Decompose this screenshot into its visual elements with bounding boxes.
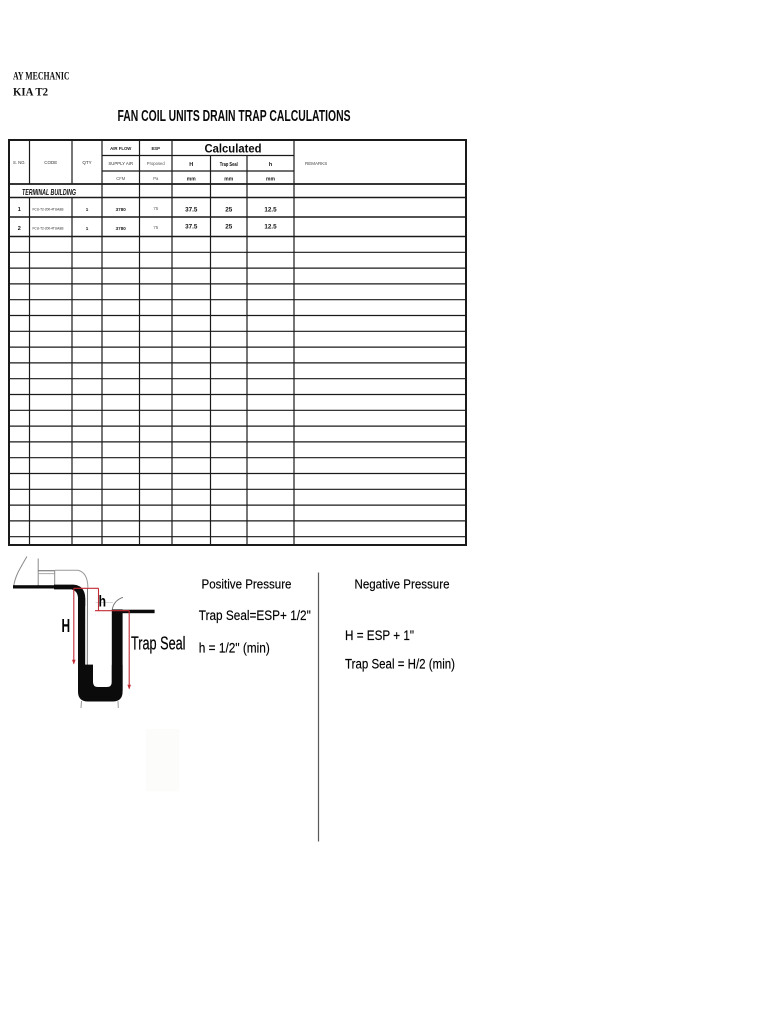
svg-text:H: H (189, 162, 193, 168)
svg-text:FAN COIL UNITS DRAIN TRAP CALC: FAN COIL UNITS DRAIN TRAP CALCULATIONS (118, 108, 351, 125)
svg-text:1: 1 (18, 207, 21, 213)
svg-text:Trap Seal: Trap Seal (220, 162, 238, 168)
svg-text:25: 25 (225, 224, 233, 231)
svg-text:Positive Pressure: Positive Pressure (202, 577, 292, 592)
svg-text:FCU-T2-200-4TUA&B: FCU-T2-200-4TUA&B (33, 208, 64, 212)
svg-text:TERMINAL BUILDING: TERMINAL BUILDING (22, 187, 76, 197)
svg-text:12.5: 12.5 (264, 224, 277, 231)
svg-text:AY MECHANIC: AY MECHANIC (13, 71, 70, 83)
svg-text:25: 25 (225, 207, 233, 214)
svg-text:REMARKS: REMARKS (305, 161, 327, 166)
svg-text:mm: mm (224, 176, 233, 182)
svg-text:75: 75 (153, 225, 159, 230)
svg-text:37.5: 37.5 (185, 224, 198, 231)
svg-text:S. NO.: S. NO. (13, 160, 26, 165)
svg-text:Trap Seal=ESP+ 1/2": Trap Seal=ESP+ 1/2" (199, 608, 311, 623)
svg-text:mm: mm (187, 176, 196, 182)
svg-text:Trap Seal: Trap Seal (131, 633, 186, 654)
svg-text:Trap Seal = H/2 (min): Trap Seal = H/2 (min) (345, 657, 455, 672)
svg-text:h = 1/2" (min): h = 1/2" (min) (199, 641, 270, 656)
svg-text:AIR FLOW: AIR FLOW (110, 146, 132, 151)
svg-text:QTY: QTY (82, 160, 91, 165)
svg-text:h: h (99, 594, 106, 611)
svg-text:H = ESP + 1": H = ESP + 1" (345, 628, 414, 643)
svg-text:Pa: Pa (153, 176, 159, 181)
svg-text:CODE: CODE (44, 160, 57, 165)
svg-text:3780: 3780 (116, 207, 127, 212)
svg-text:ESP: ESP (151, 146, 160, 151)
svg-text:SUPPLY AIR: SUPPLY AIR (108, 161, 133, 166)
svg-text:3780: 3780 (116, 226, 127, 231)
svg-text:12.5: 12.5 (264, 207, 277, 214)
svg-text:CFM: CFM (116, 176, 126, 181)
svg-text:1: 1 (86, 207, 89, 212)
svg-text:KIA T2: KIA T2 (13, 87, 48, 99)
svg-text:37.5: 37.5 (185, 207, 198, 214)
svg-text:2: 2 (18, 226, 21, 232)
svg-text:H: H (62, 616, 71, 636)
svg-text:75: 75 (153, 206, 159, 211)
svg-text:Proposed: Proposed (147, 161, 166, 166)
svg-text:FCU-T2-200-4TUA&B: FCU-T2-200-4TUA&B (33, 227, 64, 231)
svg-text:mm: mm (266, 176, 275, 182)
svg-text:Calculated: Calculated (205, 142, 262, 156)
svg-text:Negative Pressure: Negative Pressure (355, 577, 450, 592)
svg-text:1: 1 (86, 226, 89, 231)
